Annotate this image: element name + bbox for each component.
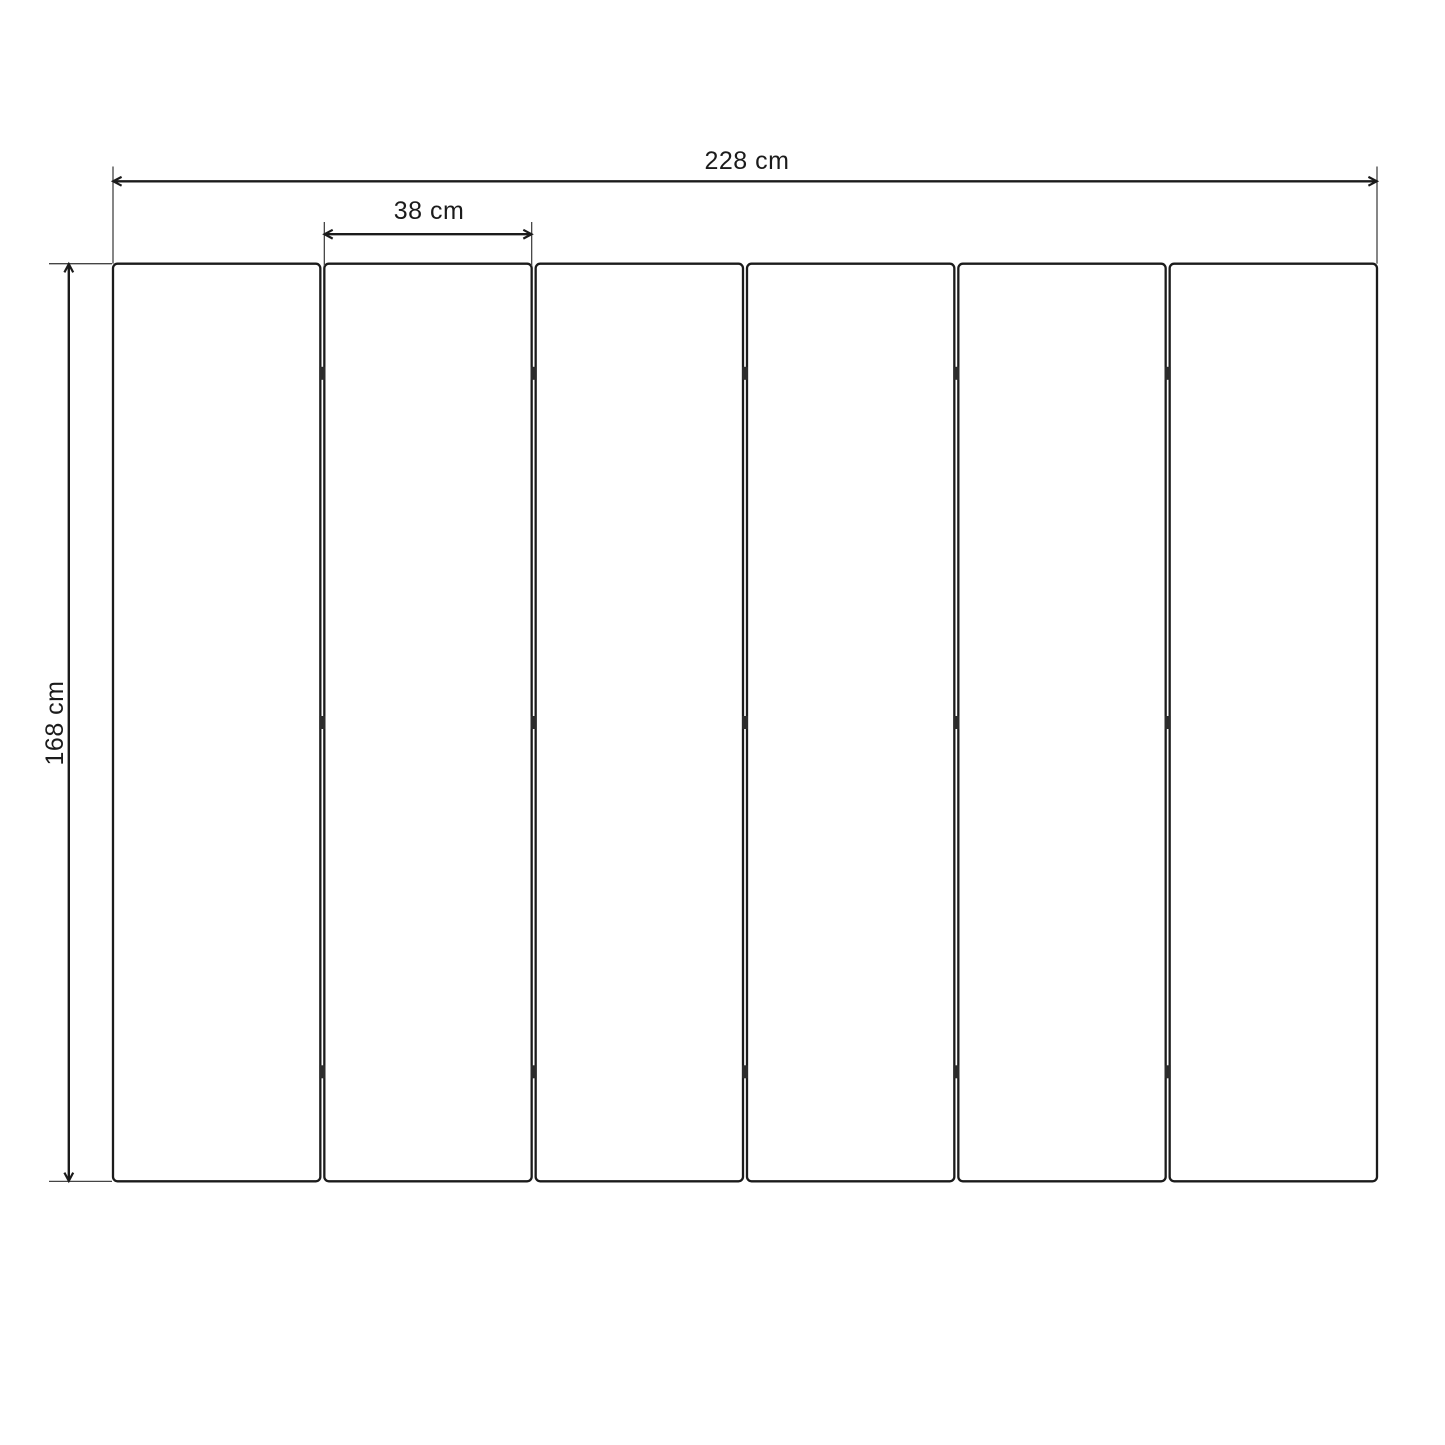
svg-text:228 cm: 228 cm (705, 147, 790, 175)
svg-text:168 cm: 168 cm (41, 681, 69, 766)
svg-text:38 cm: 38 cm (394, 197, 465, 225)
